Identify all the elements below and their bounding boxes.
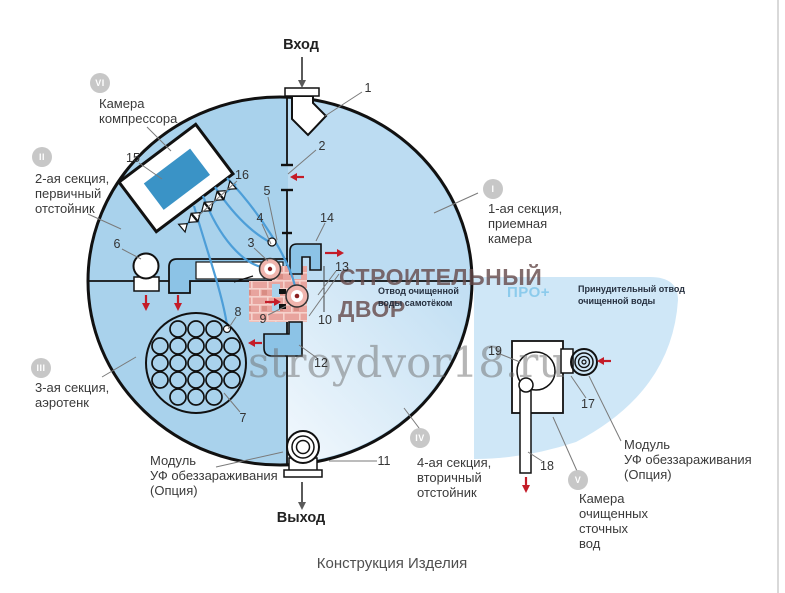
label-uv-module-left: Модуль УФ обеззараживания (Опция) [150, 453, 278, 498]
part-number-7: 7 [240, 411, 247, 425]
discharge-pipe [520, 389, 531, 473]
float-switch [134, 254, 160, 292]
note-gravity-outlet: Отвод очищенной воды самотёком [378, 286, 459, 309]
badge-section-3: III [31, 358, 51, 378]
label-uv-module-right: Модуль УФ обеззараживания (Опция) [624, 437, 752, 482]
part-number-1: 1 [365, 81, 372, 95]
uv-module-bottom [284, 431, 322, 477]
part-number-10: 10 [318, 313, 332, 327]
part-number-12: 12 [314, 356, 328, 370]
part-number-19: 19 [488, 344, 502, 358]
label-section-6: Камера компрессора [99, 96, 177, 126]
part-number-15: 15 [126, 151, 140, 165]
badge-section-1: I [483, 179, 503, 199]
badge-section-4: IV [410, 428, 430, 448]
part-number-4: 4 [257, 211, 264, 225]
label-section-2: 2-ая секция, первичный отстойник [35, 171, 109, 216]
label-section-3: 3-ая секция, аэротенк [35, 380, 109, 410]
outlet-label: Выход [277, 510, 325, 526]
part-number-13: 13 [335, 260, 349, 274]
part-number-8: 8 [235, 305, 242, 319]
part-number-11: 11 [378, 454, 391, 468]
part-number-14: 14 [320, 211, 334, 225]
airlift-pump-upper [260, 259, 281, 280]
label-section-5: Камера очищенных сточных вод [579, 491, 648, 551]
part-number-5: 5 [264, 184, 271, 198]
diagram-page: СТРОИТЕЛЬНЫЙ ДВОР stroydvor18.ru Вход Вы… [0, 0, 785, 593]
note-forced-outlet: Принудительный отвод очищенной воды [578, 284, 685, 307]
page-title: Конструкция Изделия [317, 555, 467, 572]
part-number-2: 2 [319, 139, 326, 153]
part-number-17: 17 [581, 397, 595, 411]
part-number-3: 3 [248, 236, 255, 250]
pro-plus-label: ПРО+ [507, 284, 550, 301]
badge-section-2: II [32, 147, 52, 167]
label-section-4: 4-ая секция, вторичный отстойник [417, 455, 491, 500]
part-number-16: 16 [235, 168, 249, 182]
label-section-1: 1-ая секция, приемная камера [488, 201, 562, 246]
part-number-6: 6 [114, 237, 121, 251]
part-number-9: 9 [260, 312, 267, 326]
page-edge-divider [777, 0, 779, 593]
watermark-site-url: stroydvor18.ru [248, 338, 565, 387]
part-number-18: 18 [540, 459, 554, 473]
badge-section-6: VI [90, 73, 110, 93]
inlet-label: Вход [283, 37, 319, 53]
badge-section-5: V [568, 470, 588, 490]
airlift-pump-lower [286, 285, 308, 307]
